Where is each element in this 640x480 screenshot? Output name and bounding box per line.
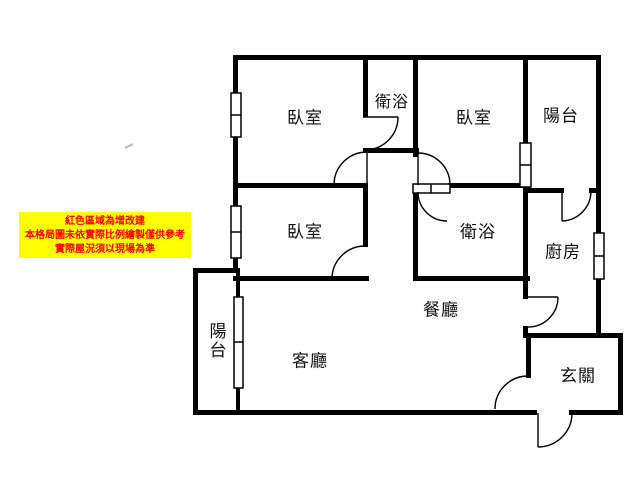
wall-bedroom1-bathroom1 bbox=[363, 55, 368, 117]
wall-balcony1-bottom bbox=[523, 188, 564, 193]
door-arc-bedroom2 bbox=[332, 246, 365, 279]
wall-balcony2-top bbox=[193, 268, 240, 273]
door-arc-bedroom1 bbox=[334, 152, 367, 185]
disclaimer-note: 紅色區域為增改建 本格局圖未依實際比例繪製僅供參考 實際屋況須以現場為準 bbox=[19, 212, 191, 258]
wall-foyer-right bbox=[618, 333, 623, 415]
wall-foyer-left bbox=[526, 333, 531, 378]
wall-balcony2-partition-lower bbox=[236, 386, 240, 413]
door-arc-entrance bbox=[538, 413, 572, 447]
door-arc-kitchen-side bbox=[528, 297, 558, 327]
door-arc-kitchen-top bbox=[562, 191, 591, 221]
disclaimer-line-3: 實際屋況須以現場為準 bbox=[19, 243, 191, 257]
door-arc-bedroom3 bbox=[418, 153, 450, 185]
wall-bottom-exterior bbox=[193, 410, 537, 415]
wall-bedroom3-bottom bbox=[448, 183, 530, 188]
disclaimer-line-1: 紅色區域為增改建 bbox=[19, 215, 191, 229]
wall-right-exterior-lower bbox=[596, 277, 601, 338]
wall-right-exterior-upper bbox=[596, 55, 601, 235]
room-label-bedroom-top-left: 臥室 bbox=[287, 104, 323, 129]
wall-bedroom2-right bbox=[363, 183, 368, 247]
wall-bottom-foyer bbox=[569, 410, 623, 415]
wall-balcony2-partition-upper bbox=[236, 272, 240, 299]
floor-plan-image: 臥室 衛浴 臥室 陽台 臥室 衛浴 廚房 餐廳 客廳 陽台 玄關 紅色區域為增改… bbox=[0, 0, 640, 480]
door-arc-bathroom2 bbox=[418, 192, 447, 221]
wall-bedroom1-bedroom2 bbox=[233, 183, 367, 188]
room-label-bedroom-top-right: 臥室 bbox=[456, 104, 492, 129]
wall-bedroom3-balcony1 bbox=[523, 55, 528, 145]
wall-bathroom1-bedroom3 bbox=[413, 55, 418, 157]
room-label-bathroom-middle: 衛浴 bbox=[460, 218, 496, 243]
wall-kitchen-left-upper bbox=[523, 188, 528, 299]
room-label-living-room: 客廳 bbox=[292, 347, 328, 372]
room-label-dining-room: 餐廳 bbox=[423, 296, 459, 321]
door-arc-foyer bbox=[495, 376, 528, 409]
wall-balcony2-left bbox=[193, 268, 198, 415]
wall-living-top bbox=[233, 276, 369, 281]
disclaimer-line-2: 本格局圖未依實際比例繪製僅供參考 bbox=[19, 229, 191, 243]
room-label-bathroom-top: 衛浴 bbox=[375, 88, 409, 112]
door-arc-bathroom1 bbox=[365, 117, 398, 150]
wall-bathroom2-bottom bbox=[413, 276, 530, 281]
room-label-kitchen: 廚房 bbox=[545, 238, 581, 263]
room-label-bedroom-middle-left: 臥室 bbox=[287, 218, 323, 243]
scan-smudge bbox=[125, 144, 133, 148]
wall-foyer-top bbox=[528, 333, 623, 338]
room-label-balcony-top-right: 陽台 bbox=[543, 102, 579, 127]
room-label-balcony-bottom-left: 陽台 bbox=[204, 322, 229, 360]
room-label-entrance-foyer: 玄關 bbox=[560, 362, 596, 387]
wall-bathroom2-left bbox=[413, 190, 418, 281]
doors-group bbox=[332, 117, 591, 447]
